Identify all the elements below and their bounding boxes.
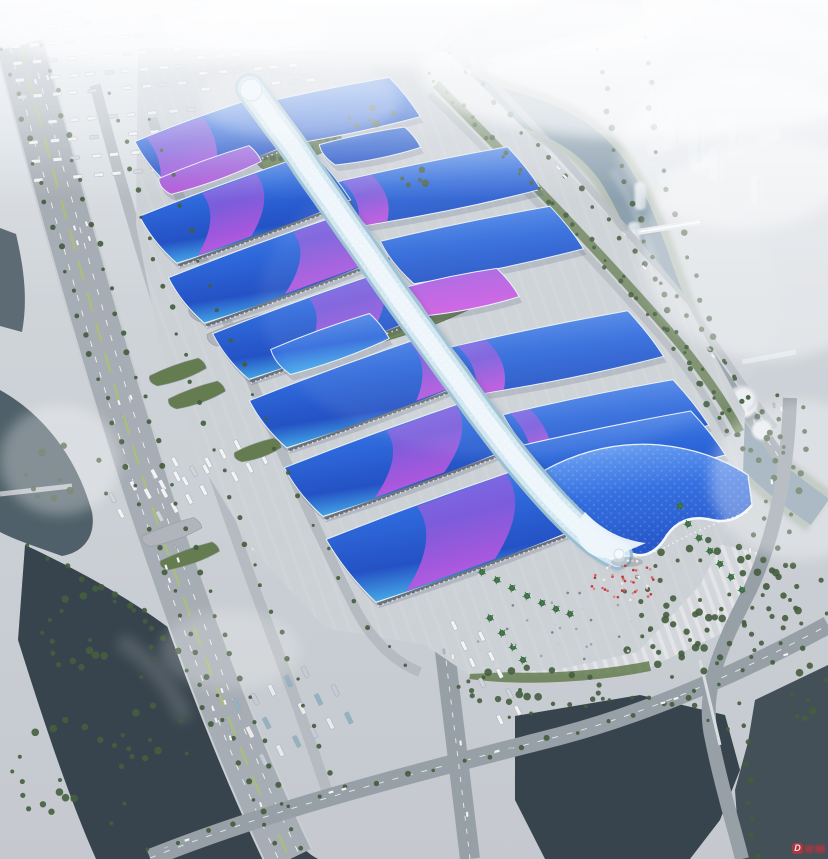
scene-canvas (0, 0, 828, 859)
watermark-logo: D (792, 843, 803, 854)
watermark: D (792, 843, 825, 854)
atmosphere (0, 0, 828, 859)
aerial-rendering: D (0, 0, 828, 859)
haze-tint (0, 0, 828, 859)
watermark-extra-glyphs (805, 845, 825, 853)
